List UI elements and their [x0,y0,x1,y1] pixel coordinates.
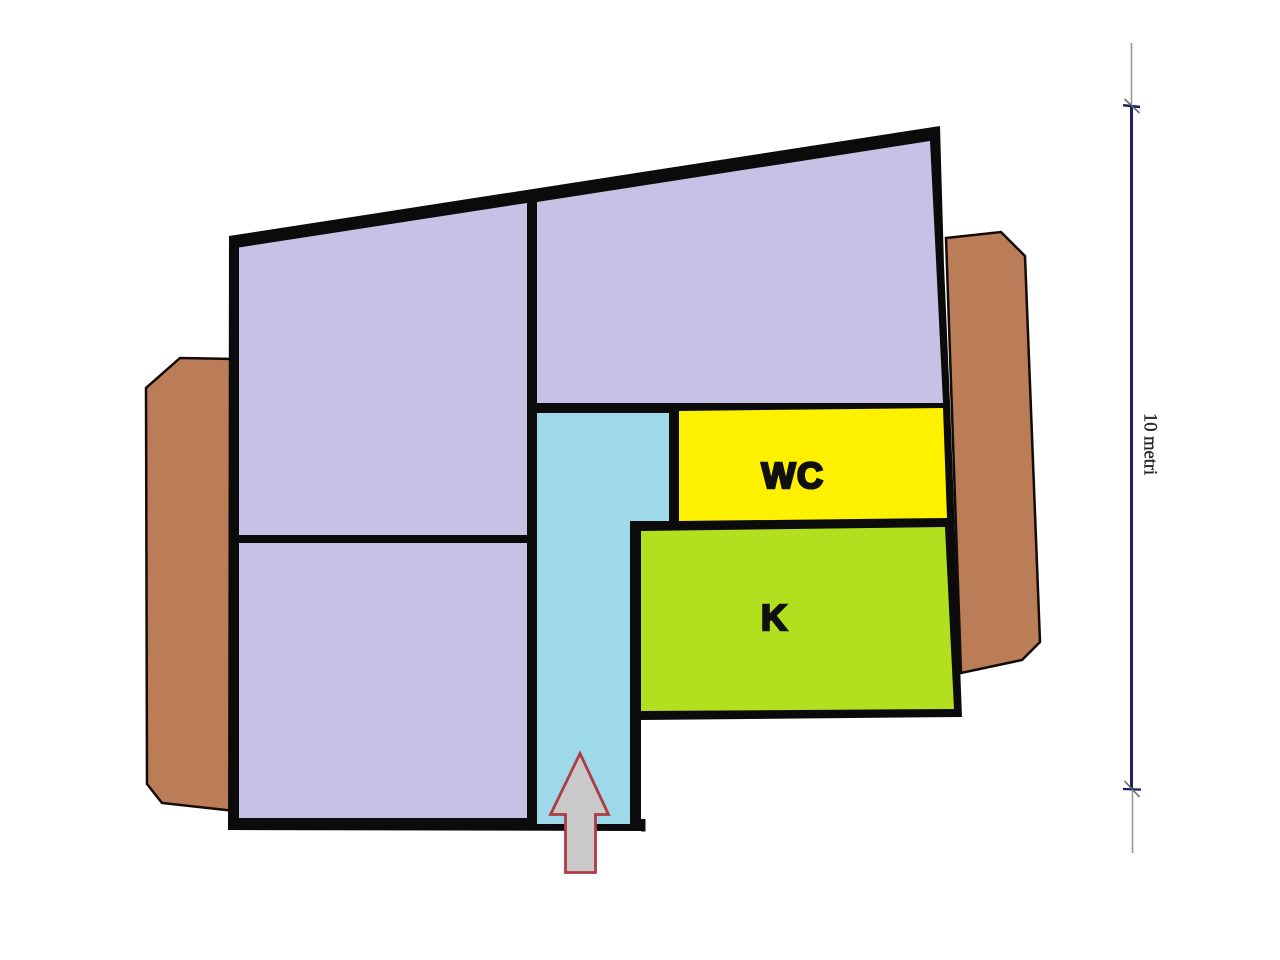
svg-text:10 metri: 10 metri [1140,413,1160,475]
svg-text:K: K [761,597,787,638]
svg-text:WC: WC [762,455,825,496]
